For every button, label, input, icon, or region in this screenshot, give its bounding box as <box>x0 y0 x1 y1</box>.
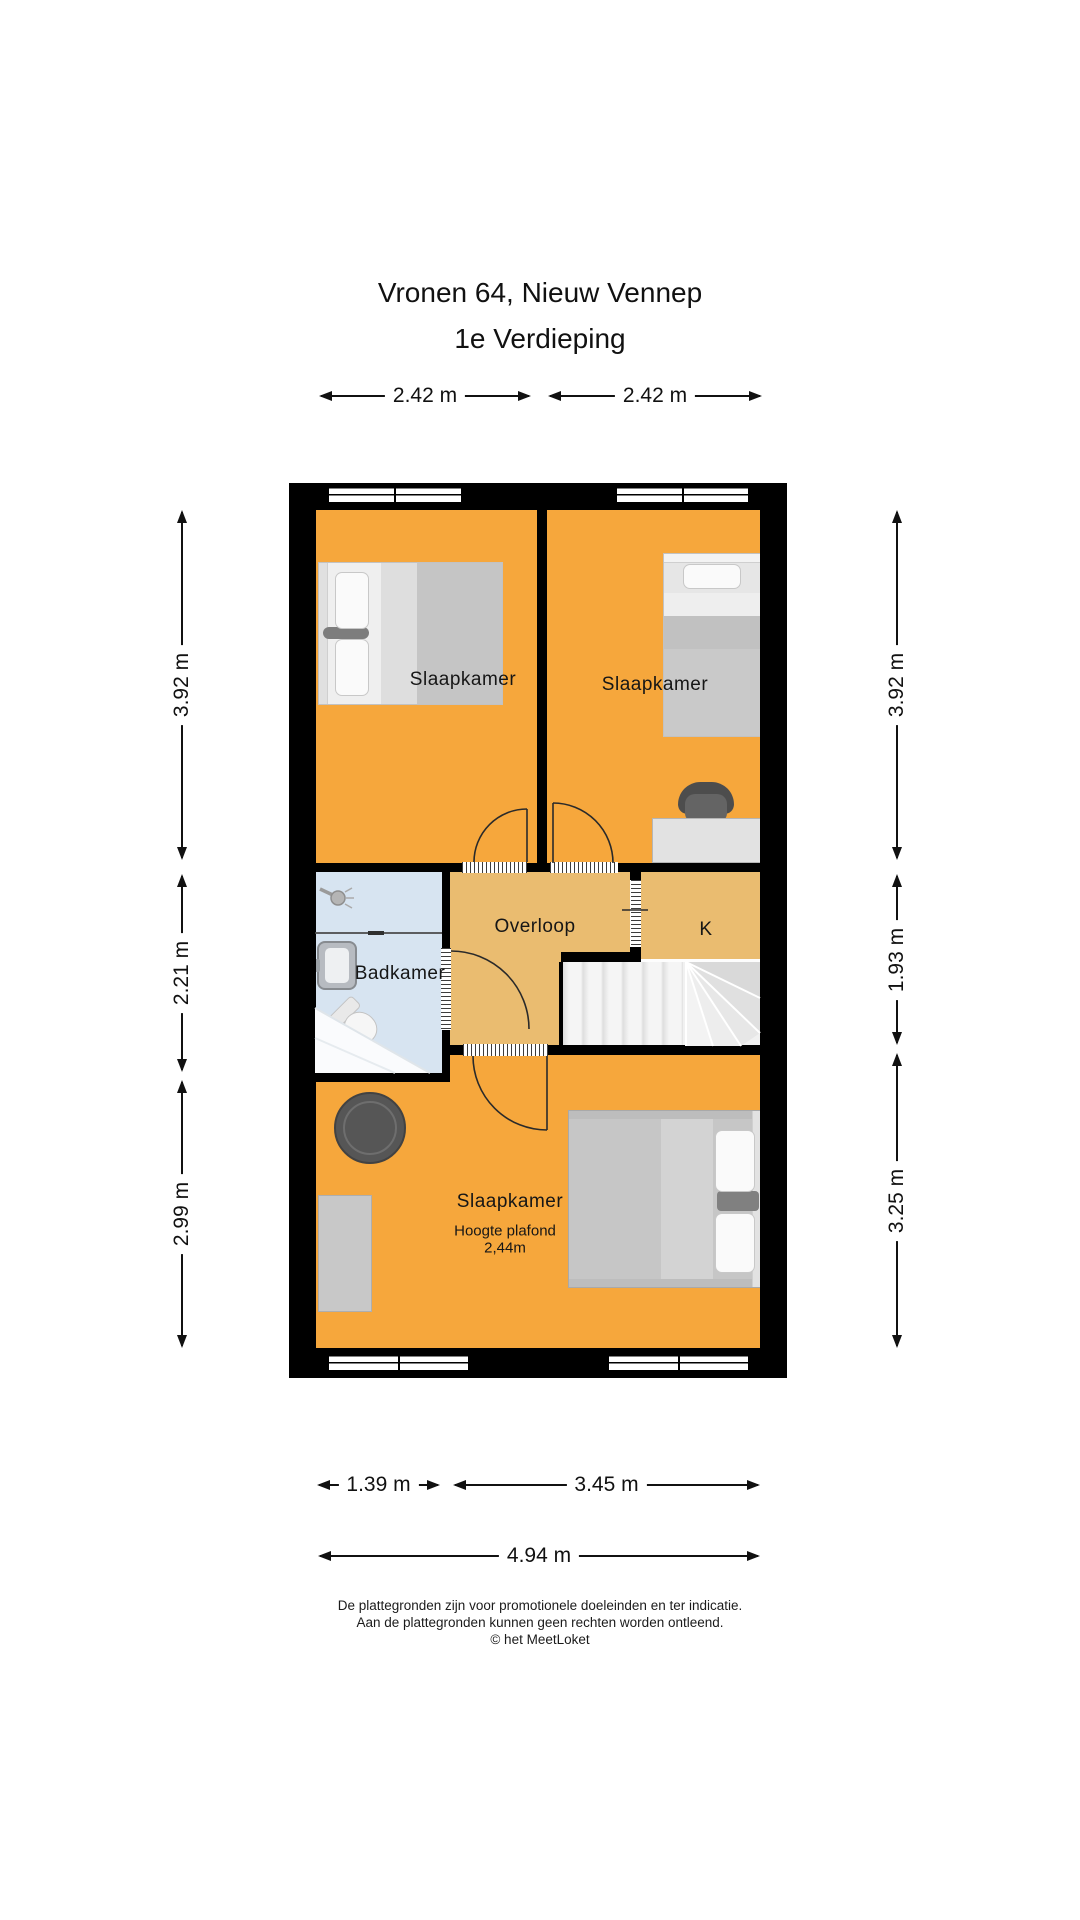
door-badkamer <box>441 948 451 1030</box>
dimension-left-3: 2.99 m <box>169 1080 195 1348</box>
dimension-label: 2.42 m <box>385 384 465 408</box>
dimension-right-3: 3.25 m <box>884 1053 910 1348</box>
bed-headboard <box>664 554 761 563</box>
door-slaapkamer-2 <box>550 862 618 873</box>
pillow <box>335 639 369 696</box>
dimension-top-left: 2.42 m <box>319 383 531 409</box>
stairs-top-edge <box>641 959 761 962</box>
dimension-label: 3.45 m <box>566 1473 646 1497</box>
dimension-right-2: 1.93 m <box>884 874 910 1045</box>
desk-slaapkamer-2 <box>652 818 761 863</box>
note-ceiling-height: Hoogte plafond <box>454 1223 556 1240</box>
door-kast <box>631 880 641 947</box>
dimension-label: 1.93 m <box>885 919 909 999</box>
title-floor: 1e Verdieping <box>0 316 1080 362</box>
bed-gap <box>717 1191 759 1211</box>
dimension-label: 2.42 m <box>615 384 695 408</box>
bed-frame <box>569 1279 761 1287</box>
dimension-right-1: 3.92 m <box>884 510 910 860</box>
title-address: Vronen 64, Nieuw Vennep <box>0 270 1080 316</box>
wall-right <box>760 483 787 1378</box>
single-bed-slaapkamer-2 <box>663 553 762 737</box>
disclaimer-line-3: © het MeetLoket <box>0 1631 1080 1648</box>
pillow <box>683 564 741 589</box>
dimension-label: 4.94 m <box>499 1544 579 1568</box>
bed-duvet-band <box>664 616 761 649</box>
wall-stairs-top <box>561 952 640 962</box>
wall-stairs-left <box>559 962 563 1047</box>
dimension-left-1: 3.92 m <box>169 510 195 860</box>
wall-left <box>289 483 316 1378</box>
window-slaapkamer-1 <box>327 487 463 503</box>
disclaimer-line-2: Aan de plattegronden kunnen geen rechten… <box>0 1614 1080 1631</box>
dimension-label: 1.39 m <box>338 1473 418 1497</box>
disclaimer-line-1: De plattegronden zijn voor promotionele … <box>0 1597 1080 1614</box>
wall-bedroom-divider <box>537 510 547 872</box>
window-slaapkamer-2 <box>615 487 750 503</box>
round-chair-cushion <box>343 1101 397 1155</box>
dimension-bottom-total: 4.94 m <box>318 1543 760 1569</box>
dimension-left-2: 2.21 m <box>169 874 195 1072</box>
window-slaapkamer-3-right <box>607 1355 750 1371</box>
room-kast <box>641 872 761 962</box>
note-ceiling-height-value: 2,44m <box>484 1240 526 1257</box>
window-slaapkamer-3-left <box>327 1355 470 1371</box>
sink-basin <box>325 948 349 983</box>
stairs-straight-treads <box>563 962 683 1047</box>
dimension-label: 2.99 m <box>170 1174 194 1254</box>
pillow <box>335 572 369 629</box>
label-slaapkamer-2: Slaapkamer <box>602 674 708 696</box>
label-kast: K <box>699 919 712 941</box>
label-slaapkamer-1: Slaapkamer <box>410 669 516 691</box>
dimension-top-right: 2.42 m <box>548 383 762 409</box>
disclaimer: De plattegronden zijn voor promotionele … <box>0 1597 1080 1648</box>
dimension-bottom-left: 1.39 m <box>317 1472 440 1498</box>
dimension-label: 3.92 m <box>885 645 909 725</box>
dimension-bottom-right: 3.45 m <box>453 1472 760 1498</box>
label-slaapkamer-3: Slaapkamer <box>457 1191 563 1213</box>
door-slaapkamer-1 <box>462 862 527 873</box>
page-title: Vronen 64, Nieuw Vennep 1e Verdieping <box>0 270 1080 362</box>
floorplan-canvas: Vronen 64, Nieuw Vennep 1e Verdieping <box>0 0 1080 1920</box>
pillow <box>715 1130 755 1192</box>
dimension-label: 2.21 m <box>170 933 194 1013</box>
wall-badkamer-bottom <box>289 1073 450 1082</box>
double-bed-slaapkamer-3 <box>568 1110 762 1288</box>
sideboard-slaapkamer-3 <box>318 1195 372 1312</box>
wall-kast-stub-top <box>630 872 641 880</box>
label-badkamer: Badkamer <box>355 963 446 985</box>
wall-band <box>316 863 761 872</box>
bed-sheet <box>664 593 761 616</box>
dimension-label: 3.25 m <box>885 1160 909 1240</box>
dimension-label: 3.92 m <box>170 645 194 725</box>
round-chair-slaapkamer-3 <box>334 1092 406 1164</box>
bed-frame <box>569 1111 761 1119</box>
pillow <box>715 1213 755 1273</box>
bed-sheet-fold <box>661 1119 713 1279</box>
label-overloop: Overloop <box>494 916 575 938</box>
room-overloop-lower <box>450 872 561 1045</box>
door-slaapkamer-3 <box>463 1044 548 1056</box>
bathroom-sink <box>317 941 357 990</box>
